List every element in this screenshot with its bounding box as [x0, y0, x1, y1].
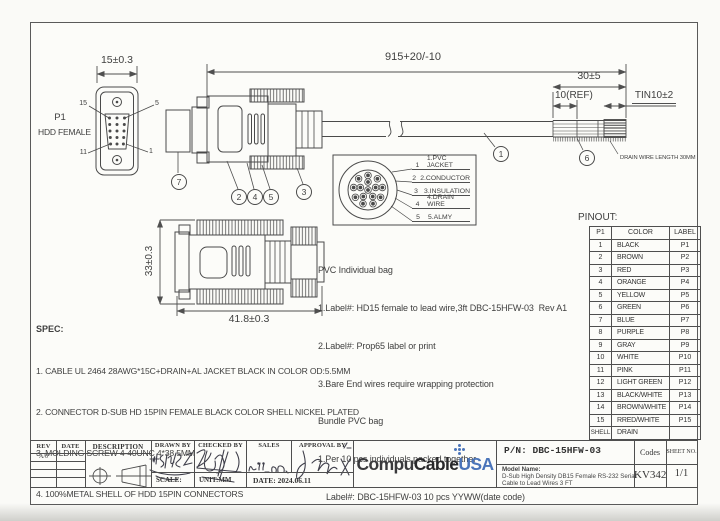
dim-face-width: 15±0.3: [86, 55, 148, 67]
label-cell: [670, 427, 701, 440]
pin-cell: 1: [590, 239, 612, 252]
engineering-drawing-page: 15±0.3 P1 HDD FEMALE 15 5 11 1 915+20/-1…: [0, 0, 720, 521]
spec-item: 2. CONNECTOR D-SUB HD 15PIN FEMALE BLACK…: [36, 406, 359, 420]
divider: [151, 472, 353, 473]
pin-cell: 9: [590, 339, 612, 352]
color-cell: BLACK: [612, 239, 670, 252]
label-cell: P15: [670, 414, 701, 427]
model-name-label: Model Name:: [502, 466, 541, 473]
label-cell: P8: [670, 327, 701, 340]
label-cell: P14: [670, 402, 701, 415]
color-cell: ORANGE: [612, 277, 670, 290]
pin-cell: 5: [590, 289, 612, 302]
sheet-header: SHEET NO.: [666, 449, 697, 455]
balloon-1: 1: [493, 146, 509, 162]
dim-strip: 30±5: [564, 71, 614, 83]
color-cell: RRED/WHITE: [612, 414, 670, 427]
pinout-row: 12LIGHT GREENP12: [590, 377, 701, 390]
dim-ref: 10(REF): [555, 90, 593, 101]
balloon-7: 7: [171, 174, 187, 190]
pin-callout-11: 11: [73, 149, 87, 157]
balloon-3: 3: [296, 184, 312, 200]
dust-cap: [166, 110, 190, 173]
logo-cable: Cable: [414, 454, 459, 474]
balloon-6: 6: [579, 150, 595, 166]
date-header: DATE: [56, 443, 85, 450]
color-cell: BROWN: [612, 252, 670, 265]
drawn-by-header: DRAWN BY: [152, 442, 194, 449]
pin-cell: 7: [590, 314, 612, 327]
label-cell: P9: [670, 339, 701, 352]
color-cell: GRAY: [612, 339, 670, 352]
codes-header: Codes: [634, 448, 666, 457]
sales-header: SALES: [247, 442, 291, 449]
pin-cell: 10: [590, 352, 612, 365]
color-cell: BROWN/WHITE: [612, 402, 670, 415]
model-name-line2: Cable to Lead Wires 3 FT: [502, 480, 573, 487]
pinout-row: 10WHITEP10: [590, 352, 701, 365]
pin-holes: [108, 117, 126, 146]
color-cell: RED: [612, 264, 670, 277]
pinout-row: 6GREENP6: [590, 302, 701, 315]
legend-num: 5: [412, 214, 424, 221]
legend-num: 4: [412, 201, 423, 208]
pinout-row: 2BROWNP2: [590, 252, 701, 265]
color-cell: PURPLE: [612, 327, 670, 340]
pinout-title: PINOUT:: [578, 212, 617, 223]
p1-label: P1: [48, 113, 72, 123]
pin-cell: 3: [590, 264, 612, 277]
label-cell: P2: [670, 252, 701, 265]
label-cell: P4: [670, 277, 701, 290]
note-line: 1.Label#: HD15 female to lead wire,3ft D…: [318, 302, 567, 315]
pin-cell: SHELL: [590, 427, 612, 440]
color-cell: YELLOW: [612, 289, 670, 302]
logo-usa: USA: [458, 454, 493, 474]
side-view-connector: [192, 89, 322, 169]
label-cell: P11: [670, 364, 701, 377]
pin-callout-leaders: [88, 105, 154, 153]
pin-callout-1: 1: [149, 148, 153, 156]
cable: [322, 120, 626, 142]
divider: [496, 464, 698, 465]
dim-conn-height: 33±0.3: [144, 231, 156, 291]
rev-header: REV: [31, 443, 56, 450]
sheet-value: 1/1: [666, 468, 697, 479]
description-header: DESCRIPTION: [85, 443, 151, 451]
color-cell: WHITE: [612, 352, 670, 365]
label-cell: P7: [670, 314, 701, 327]
divider: [31, 477, 85, 478]
logo-plus-icon: [458, 448, 461, 451]
part-number: P/N: DBC-15HFW-03: [504, 445, 601, 456]
pin-cell: 4: [590, 277, 612, 290]
p1-type-label: HDD FEMALE: [38, 128, 91, 137]
pin-cell: 2: [590, 252, 612, 265]
legend-label: 1.PVC JACKET: [423, 155, 470, 169]
legend-row: 2 2.CONDUCTOR: [412, 171, 470, 183]
color-cell: BLACK/WHITE: [612, 389, 670, 402]
label-cell: P5: [670, 289, 701, 302]
dim-face-width-lines: [97, 66, 137, 83]
color-cell: GREEN: [612, 302, 670, 315]
date-value: DATE: 2024.06.11: [253, 476, 311, 485]
pinout-row: 3REDP3: [590, 264, 701, 277]
pin-cell: 8: [590, 327, 612, 340]
pin-cell: 14: [590, 402, 612, 415]
compucable-logo: CompuCableUSA: [354, 454, 496, 475]
drain-wire-note: DRAIN WIRE LENGTH 30MM: [620, 155, 695, 161]
label-cell: P6: [670, 302, 701, 315]
dim-tin: TIN10±2: [630, 90, 678, 101]
spec-title: SPEC:: [36, 325, 64, 335]
legend-row: 1 1.PVC JACKET: [412, 158, 470, 170]
pin-cell: 6: [590, 302, 612, 315]
label-cell: P12: [670, 377, 701, 390]
legend-label: 2.CONDUCTOR: [416, 175, 470, 182]
pinout-row: 14BROWN/WHITEP14: [590, 402, 701, 415]
pinout-row: 13BLACK/WHITEP13: [590, 389, 701, 402]
label-cell: P13: [670, 389, 701, 402]
label-cell: P10: [670, 352, 701, 365]
note-line: PVC Individual bag: [318, 264, 567, 277]
pin-cell: 15: [590, 414, 612, 427]
scale-label: SCALE:: [156, 476, 182, 484]
legend-num: 1: [412, 162, 423, 169]
legend-label: 5.ALMY: [424, 214, 452, 221]
legend-row: 4 4.DRAIN WIRE: [412, 197, 470, 209]
spec-item: 4. 100%METAL SHELL OF HDD 15PIN CONNECTO…: [36, 488, 359, 502]
pinout-row: 5YELLOWP5: [590, 289, 701, 302]
color-cell: LIGHT GREEN: [612, 377, 670, 390]
balloon-5: 5: [263, 189, 279, 205]
large-side-view-connector: [175, 220, 324, 304]
divider: [31, 461, 85, 462]
pin-cell: 12: [590, 377, 612, 390]
pinout-row: 8PURPLEP8: [590, 327, 701, 340]
pinout-header-label: LABEL: [670, 227, 701, 240]
pinout-row: 4ORANGEP4: [590, 277, 701, 290]
logo-compu: Compu: [356, 454, 413, 474]
pinout-row: 1BLACKP1: [590, 239, 701, 252]
color-cell: DRAIN: [612, 427, 670, 440]
spec-item: 1. CABLE UL 2464 28AWG*15C+DRAIN+AL JACK…: [36, 365, 359, 379]
legend-row: 5 5.ALMY: [412, 210, 470, 222]
face-view-connector: [88, 87, 154, 175]
balloon-4: 4: [247, 189, 263, 205]
pin-callout-15: 15: [72, 100, 87, 108]
pinout-header-row: P1 COLOR LABEL: [590, 227, 701, 240]
codes-value: KV342: [634, 469, 666, 481]
balloon-2: 2: [231, 189, 247, 205]
pin-cell: 13: [590, 389, 612, 402]
pin-callout-5: 5: [155, 100, 159, 108]
pin-cell: 11: [590, 364, 612, 377]
unit-label: UNIT:MM: [199, 476, 232, 484]
pinout-row: 15RRED/WHITEP15: [590, 414, 701, 427]
pinout-header-color: COLOR: [612, 227, 670, 240]
title-block: REV DATE DESCRIPTION A/0 DRAWN BY CHECKE…: [30, 440, 698, 488]
label-cell: P3: [670, 264, 701, 277]
legend-label: 4.DRAIN WIRE: [423, 194, 470, 208]
pinout-row: 9GRAYP9: [590, 339, 701, 352]
label-cell: P1: [670, 239, 701, 252]
pinout-table: P1 COLOR LABEL 1BLACKP1 2BROWNP2 3REDP3 …: [589, 226, 701, 440]
checked-by-header: CHECKED BY: [195, 442, 246, 449]
color-cell: BLUE: [612, 314, 670, 327]
pinout-row: 11PINKP11: [590, 364, 701, 377]
dim-total-length: 915+20/-10: [366, 51, 460, 63]
divider: [31, 469, 85, 470]
approval-by-header: APPROVAL BY: [292, 442, 353, 449]
pinout-row: SHELLDRAIN: [590, 427, 701, 440]
spec-list: 1. CABLE UL 2464 28AWG*15C+DRAIN+AL JACK…: [36, 338, 359, 521]
legend-num: 3: [412, 188, 420, 195]
pinout-header-pin: P1: [590, 227, 612, 240]
rev-value: A/0: [31, 454, 56, 460]
model-name-line1: D-Sub High Density DB15 Female RS-232 Se…: [502, 473, 636, 480]
dim-conn-length: 41.8±0.3: [204, 314, 294, 326]
color-cell: PINK: [612, 364, 670, 377]
pinout-row: 7BLUEP7: [590, 314, 701, 327]
